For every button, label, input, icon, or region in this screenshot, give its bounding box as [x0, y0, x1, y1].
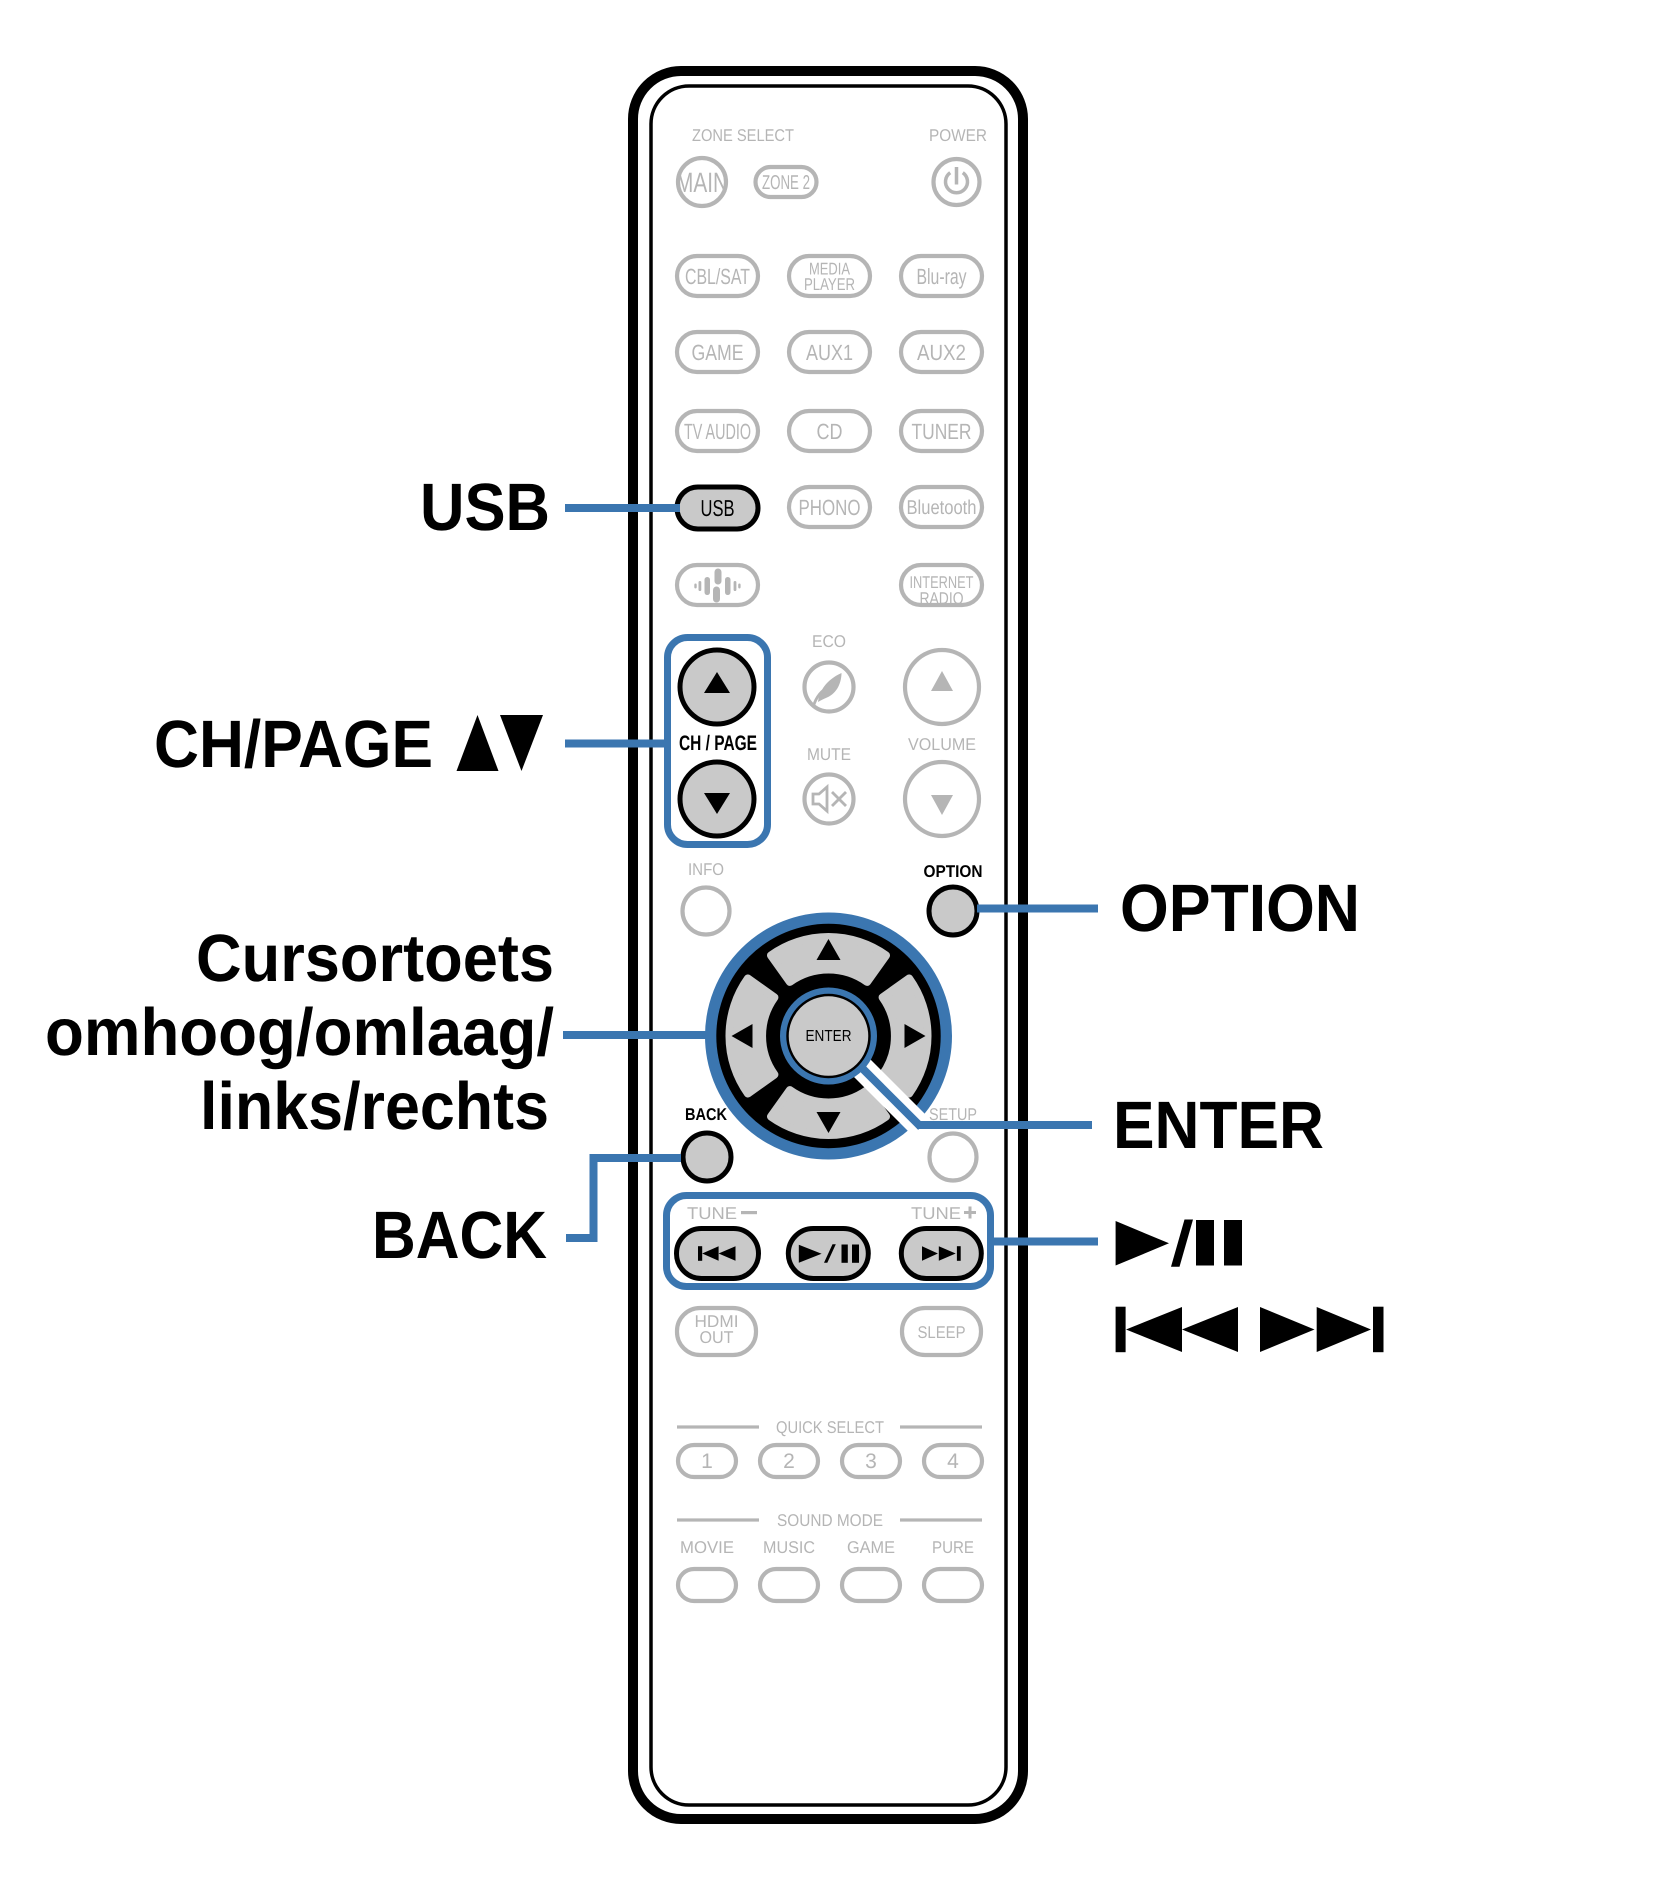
svg-text:AUX1: AUX1: [806, 340, 853, 365]
svg-text:CBL/SAT: CBL/SAT: [685, 264, 750, 289]
svg-text:Cursortoets: Cursortoets: [196, 921, 554, 996]
svg-text:ZONE SELECT: ZONE SELECT: [692, 126, 794, 145]
svg-text:USB: USB: [420, 470, 550, 545]
svg-text:PHONO: PHONO: [799, 495, 861, 520]
svg-text:OPTION: OPTION: [924, 862, 983, 881]
svg-text:VOLUME: VOLUME: [908, 735, 976, 754]
svg-text:GAME: GAME: [847, 1538, 895, 1557]
svg-text:ZONE 2: ZONE 2: [762, 172, 810, 194]
svg-text:MUSIC: MUSIC: [763, 1538, 815, 1557]
svg-text:ECO: ECO: [812, 632, 846, 651]
svg-text:CD: CD: [817, 419, 843, 444]
svg-text:omhoog/omlaag/: omhoog/omlaag/: [45, 995, 554, 1070]
svg-text:SLEEP: SLEEP: [918, 1323, 966, 1342]
svg-text:TUNE: TUNE: [911, 1204, 961, 1223]
svg-text:2: 2: [783, 1450, 795, 1473]
svg-text:BACK: BACK: [372, 1198, 547, 1273]
svg-text:CH/PAGE: CH/PAGE: [154, 707, 433, 782]
svg-text:TV AUDIO: TV AUDIO: [684, 419, 751, 444]
svg-text:BACK: BACK: [685, 1105, 728, 1124]
svg-text:AUX2: AUX2: [917, 340, 966, 365]
svg-text:TUNER: TUNER: [912, 419, 972, 444]
svg-text:MUTE: MUTE: [807, 745, 851, 764]
svg-text:PURE: PURE: [932, 1538, 974, 1557]
svg-text:ENTER: ENTER: [1113, 1088, 1324, 1163]
svg-text:RADIO: RADIO: [920, 589, 964, 608]
svg-text:POWER: POWER: [929, 126, 987, 145]
svg-text:3: 3: [865, 1450, 877, 1473]
svg-text:SOUND MODE: SOUND MODE: [777, 1511, 883, 1530]
svg-text:MAIN: MAIN: [676, 167, 728, 198]
svg-text:MOVIE: MOVIE: [680, 1538, 734, 1557]
svg-text:Bluetooth: Bluetooth: [907, 497, 977, 519]
svg-text:OPTION: OPTION: [1120, 871, 1360, 946]
svg-text:INFO: INFO: [688, 860, 724, 879]
svg-text:TUNE: TUNE: [687, 1204, 737, 1223]
svg-text:QUICK SELECT: QUICK SELECT: [776, 1418, 884, 1437]
svg-text:CH / PAGE: CH / PAGE: [679, 732, 757, 755]
svg-text:Blu-ray: Blu-ray: [917, 264, 967, 289]
svg-text:1: 1: [701, 1450, 713, 1473]
svg-text:USB: USB: [701, 495, 735, 521]
svg-text:PLAYER: PLAYER: [804, 275, 855, 294]
svg-text:OUT: OUT: [700, 1328, 734, 1347]
svg-text:ENTER: ENTER: [806, 1028, 852, 1045]
svg-text:4: 4: [947, 1450, 959, 1473]
svg-text:links/rechts: links/rechts: [200, 1069, 549, 1144]
svg-text:GAME: GAME: [692, 340, 744, 365]
